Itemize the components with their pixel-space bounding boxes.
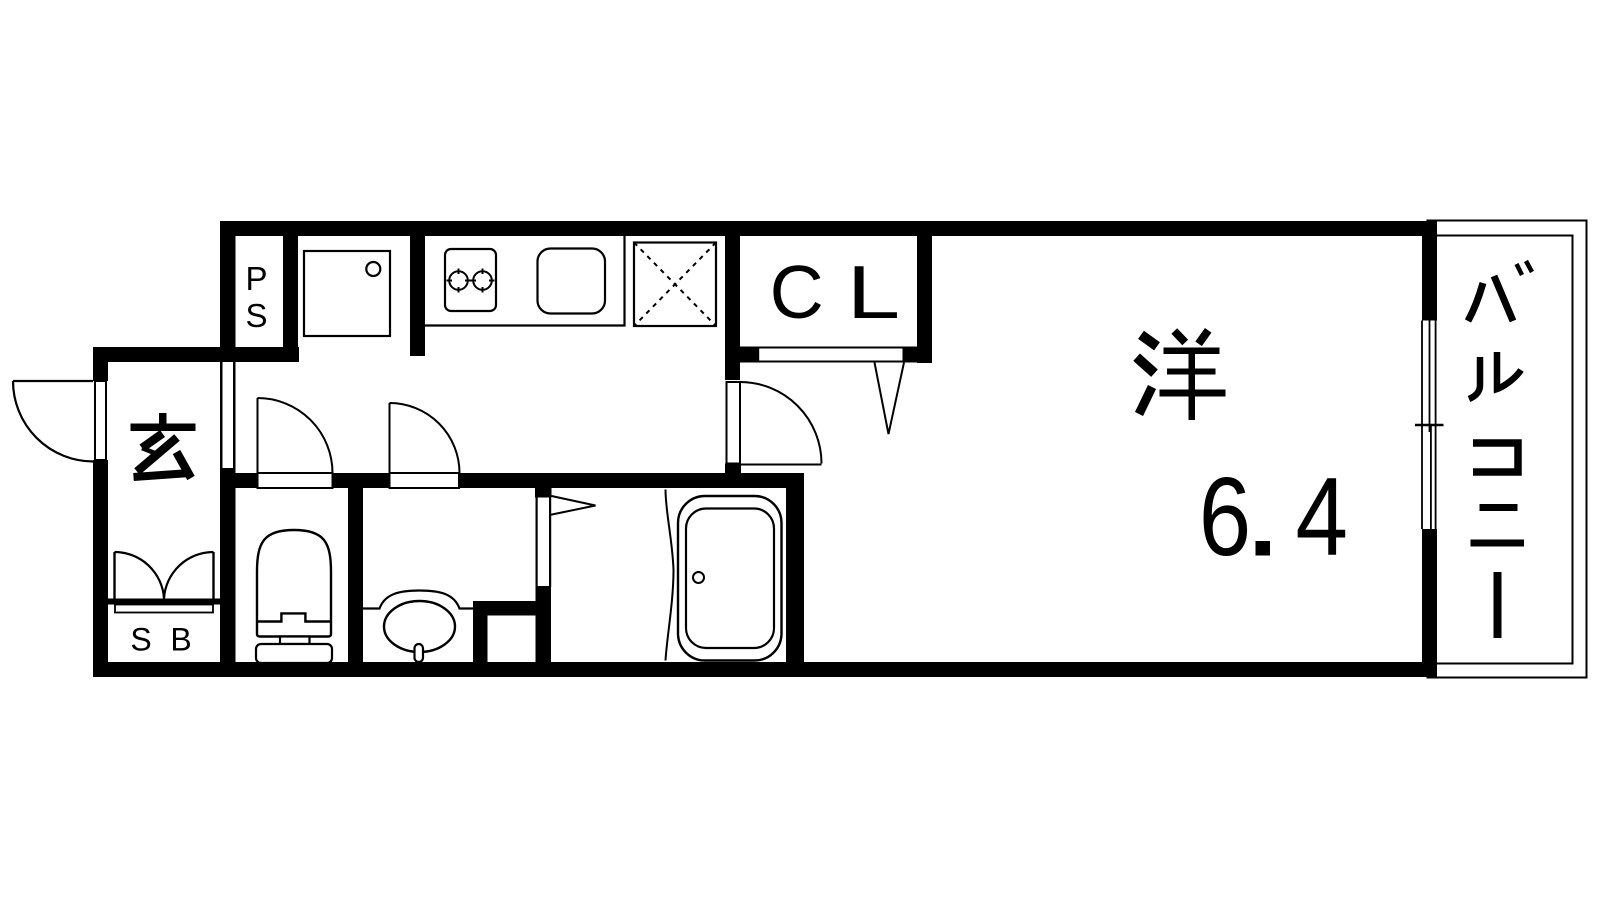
svg-text:C: C [770, 250, 824, 334]
svg-text:S: S [130, 622, 151, 658]
svg-text:P: P [245, 260, 267, 297]
svg-text:B: B [170, 622, 191, 658]
svg-text:6: 6 [1199, 455, 1251, 579]
svg-text:L: L [847, 251, 900, 335]
svg-text:S: S [245, 297, 267, 334]
svg-text:4: 4 [1295, 455, 1347, 579]
